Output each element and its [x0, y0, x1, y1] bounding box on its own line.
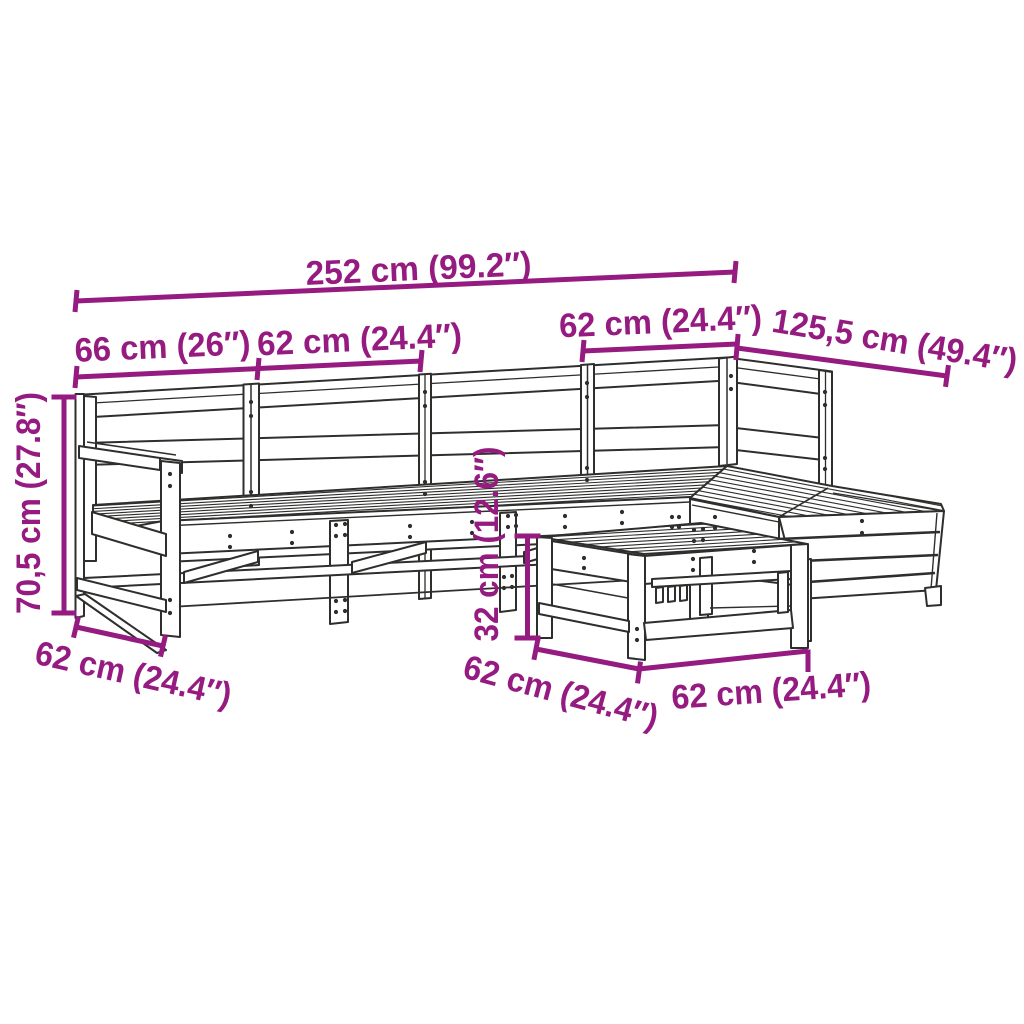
svg-text:32 cm (12.6″): 32 cm (12.6″) — [468, 447, 506, 642]
svg-text:66 cm (26″): 66 cm (26″) — [74, 324, 251, 370]
svg-text:70,5 cm (27.8″): 70,5 cm (27.8″) — [10, 392, 48, 614]
